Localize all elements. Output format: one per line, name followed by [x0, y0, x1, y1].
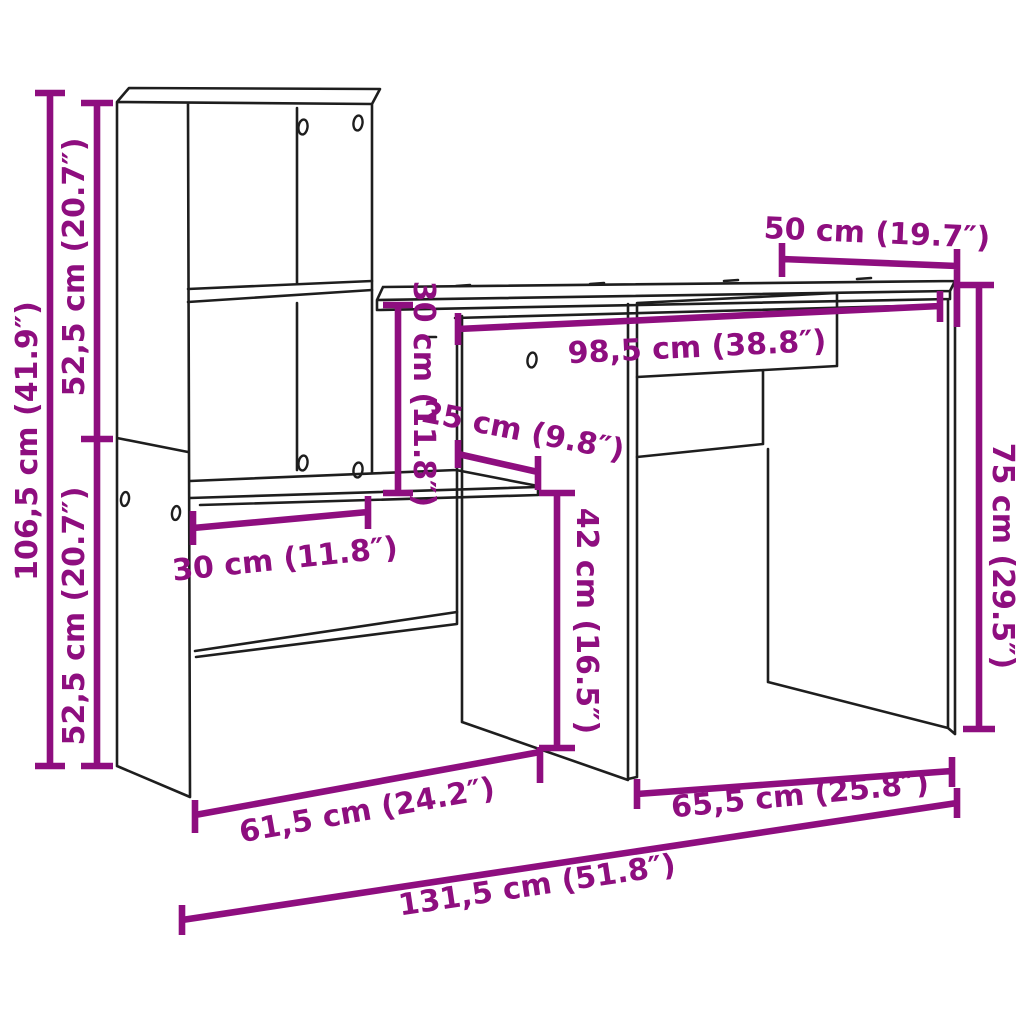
- diagram-canvas: 106,5 cm (41.9″) 52,5 cm (20.7″) 52,5 cm…: [0, 0, 1024, 1024]
- dimension-labels: 106,5 cm (41.9″) 52,5 cm (20.7″) 52,5 cm…: [10, 138, 1020, 924]
- dimension-label-under-shelf-clearance: 42 cm (16.5″): [569, 508, 604, 735]
- dimension-label-shelf-width: 30 cm (11.8″): [171, 530, 400, 588]
- dimension-label-desk-height: 75 cm (29.5″): [985, 443, 1020, 670]
- tower-outline: [117, 88, 380, 797]
- dimension-label-total-width: 131,5 cm (51.8″): [396, 848, 678, 924]
- dimension-label-right-section-width: 65,5 cm (25.8″): [670, 766, 931, 826]
- dimension-label-shelf-depth: 25 cm (9.8″): [419, 395, 628, 469]
- dimension-label-hutch-clearance: 30 cm (11.8″): [406, 281, 441, 508]
- partition-outline: [628, 304, 637, 779]
- dimension-label-upper-section-height: 52,5 cm (20.7″): [57, 138, 92, 397]
- furniture-dimension-diagram: 106,5 cm (41.9″) 52,5 cm (20.7″) 52,5 cm…: [0, 0, 1024, 1024]
- dimension-label-total-height: 106,5 cm (41.9″): [10, 301, 45, 581]
- dimension-label-lower-section-height: 52,5 cm (20.7″): [57, 487, 92, 746]
- dimension-label-desk-depth: 50 cm (19.7″): [763, 211, 991, 256]
- dimension-label-desktop-width: 98,5 cm (38.8″): [567, 324, 827, 372]
